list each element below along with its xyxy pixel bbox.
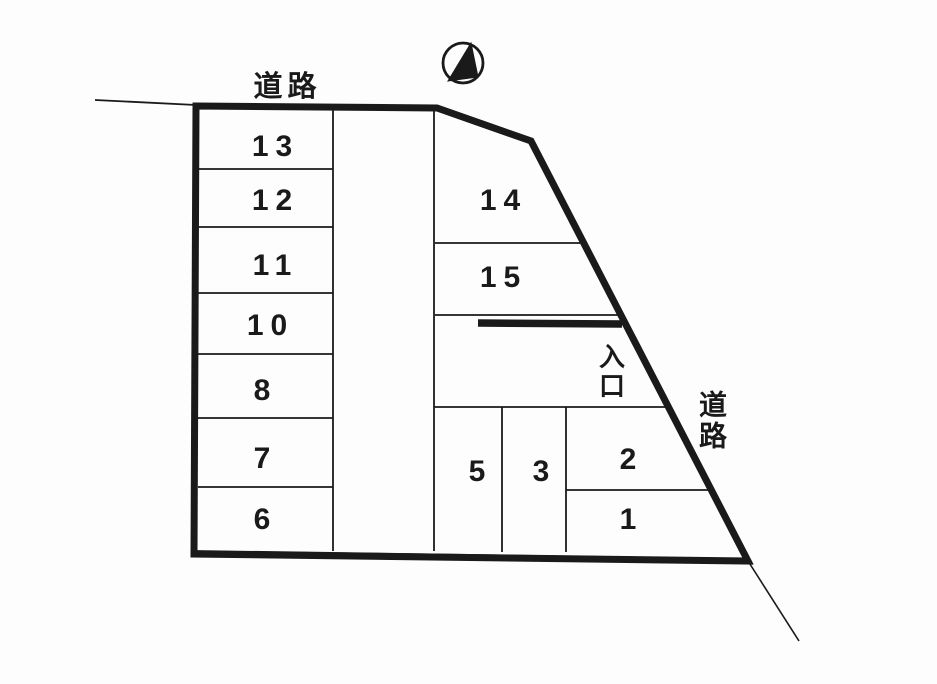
- diagram-canvas: [0, 0, 937, 684]
- space-label-2: 2: [613, 443, 644, 477]
- north-arrow-icon: [443, 43, 483, 83]
- space-label-7: 7: [247, 442, 278, 476]
- space-label-1: 1: [613, 503, 644, 537]
- entrance-label: 入口: [593, 343, 630, 401]
- road-edge-line-top-left: [95, 100, 196, 105]
- road-edge-line-bottom-right: [748, 561, 799, 641]
- space-label-5: 5: [462, 455, 493, 489]
- space-label-11: 11: [246, 249, 299, 283]
- road-label-top: 道路: [248, 63, 321, 105]
- road-label-right: 道路: [691, 390, 731, 452]
- space-label-10: 10: [240, 309, 294, 343]
- space-label-8: 8: [247, 374, 278, 408]
- space-label-12: 12: [245, 184, 299, 218]
- space-label-6: 6: [247, 503, 278, 537]
- entrance-bar: [478, 323, 622, 324]
- parking-lot-diagram: 道路 道路 入口 13 12 11 10 8 7 6 14 15 5 3 2 1: [0, 0, 937, 684]
- space-label-14: 14: [473, 184, 527, 218]
- space-label-3: 3: [526, 455, 557, 489]
- space-label-15: 15: [473, 261, 527, 295]
- space-label-13: 13: [245, 130, 299, 164]
